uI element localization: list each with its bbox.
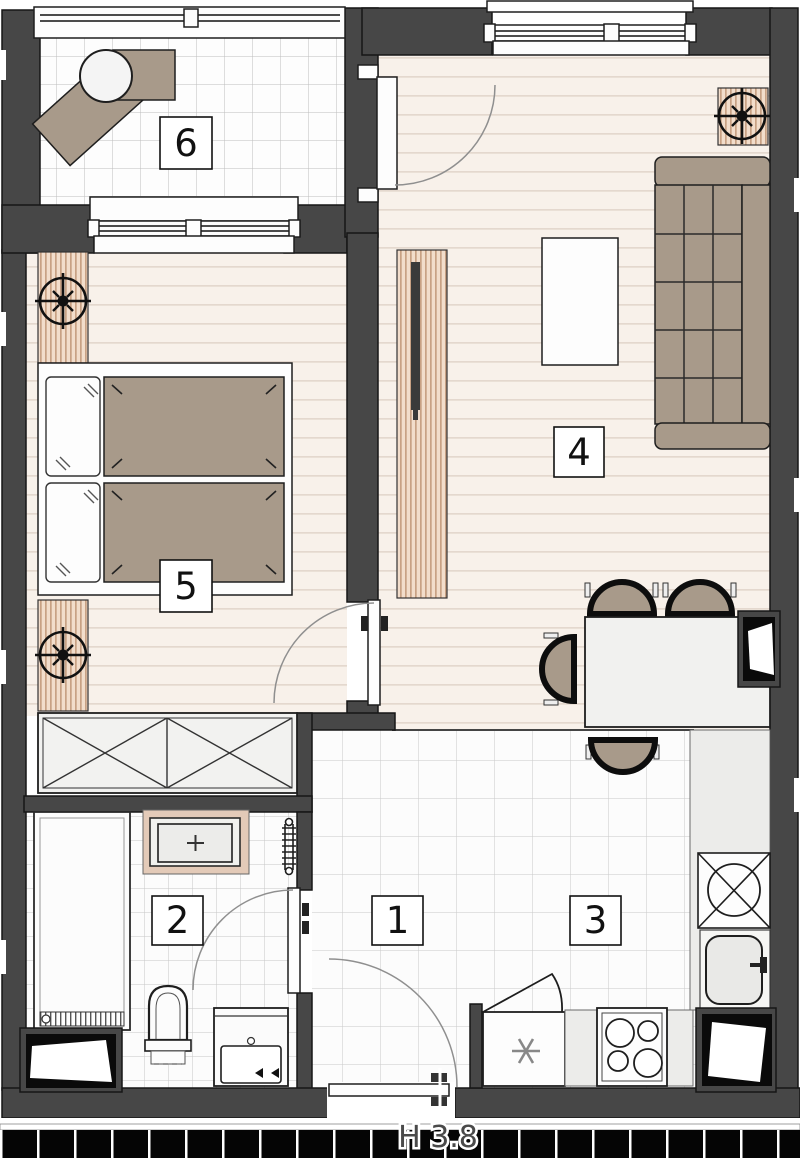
bedroom-window [88, 197, 300, 253]
room-label-bathroom: 2 [152, 896, 203, 945]
toilet-cistern [145, 1040, 191, 1051]
wall-balcony-bedroom-left [2, 205, 94, 253]
room-label-living-room: 4 [554, 427, 604, 477]
wall-shaft-dining [738, 611, 780, 687]
bedroom-radiator-top [35, 252, 91, 363]
tv-cabinet [397, 250, 447, 598]
living-room-window [484, 1, 696, 55]
room-label-bedroom: 5 [160, 560, 212, 612]
bedroom-radiator-bottom [35, 600, 91, 711]
tv [411, 262, 420, 410]
kitchen-fridge-vent [698, 853, 770, 928]
kitchen-sink [700, 930, 770, 1010]
pillow [46, 483, 100, 582]
burner [608, 1051, 628, 1071]
wall-top-left-of-window [362, 8, 492, 55]
washing-machine [214, 1008, 288, 1086]
shaft-bottom-left [20, 1028, 122, 1092]
burner [634, 1049, 662, 1077]
wall-top-right-of-window [686, 8, 772, 55]
room-number: 6 [174, 122, 198, 165]
bedroom-wardrobe [38, 713, 297, 793]
entrance-note: H 3.8 [398, 1120, 478, 1155]
living-radiator [714, 88, 770, 145]
floor-plan-page: 1 2 3 4 5 6 H 3.8 [0, 0, 800, 1158]
vanity-sink [143, 810, 249, 874]
room-number: 4 [567, 431, 591, 474]
room-number: 2 [166, 899, 190, 942]
wall-bathroom-right-a [297, 812, 312, 890]
room-label-balcony: 6 [160, 117, 212, 169]
sofa [655, 157, 770, 449]
wall-bathroom-right-b [297, 993, 312, 1090]
washer-door [221, 1046, 281, 1083]
mattress [104, 377, 284, 476]
room-label-hallway: 1 [372, 896, 423, 945]
burner [638, 1021, 658, 1041]
burner [606, 1019, 634, 1047]
balcony-glazing [34, 7, 345, 38]
room-label-kitchen: 3 [570, 896, 621, 945]
toilet [145, 986, 191, 1064]
pillow [46, 377, 100, 476]
shaft-bottom-right [696, 1008, 776, 1092]
wall-bedroom-living [347, 233, 378, 602]
room-number: 1 [386, 899, 410, 942]
counter-segment [565, 1010, 597, 1086]
round-side-table [80, 50, 132, 102]
room-number: 5 [174, 565, 198, 608]
coffee-table [542, 238, 618, 365]
wall-kitchen-stub [470, 1004, 482, 1088]
shower-drain-grate [40, 1012, 124, 1026]
shower [34, 812, 130, 1030]
counter-segment [667, 1010, 693, 1086]
room-number: 3 [584, 899, 608, 942]
wall-right-exterior [770, 8, 798, 1118]
cooktop [597, 1008, 667, 1086]
floor-plan-drawing: 1 2 3 4 5 6 H 3.8 [0, 0, 800, 1158]
